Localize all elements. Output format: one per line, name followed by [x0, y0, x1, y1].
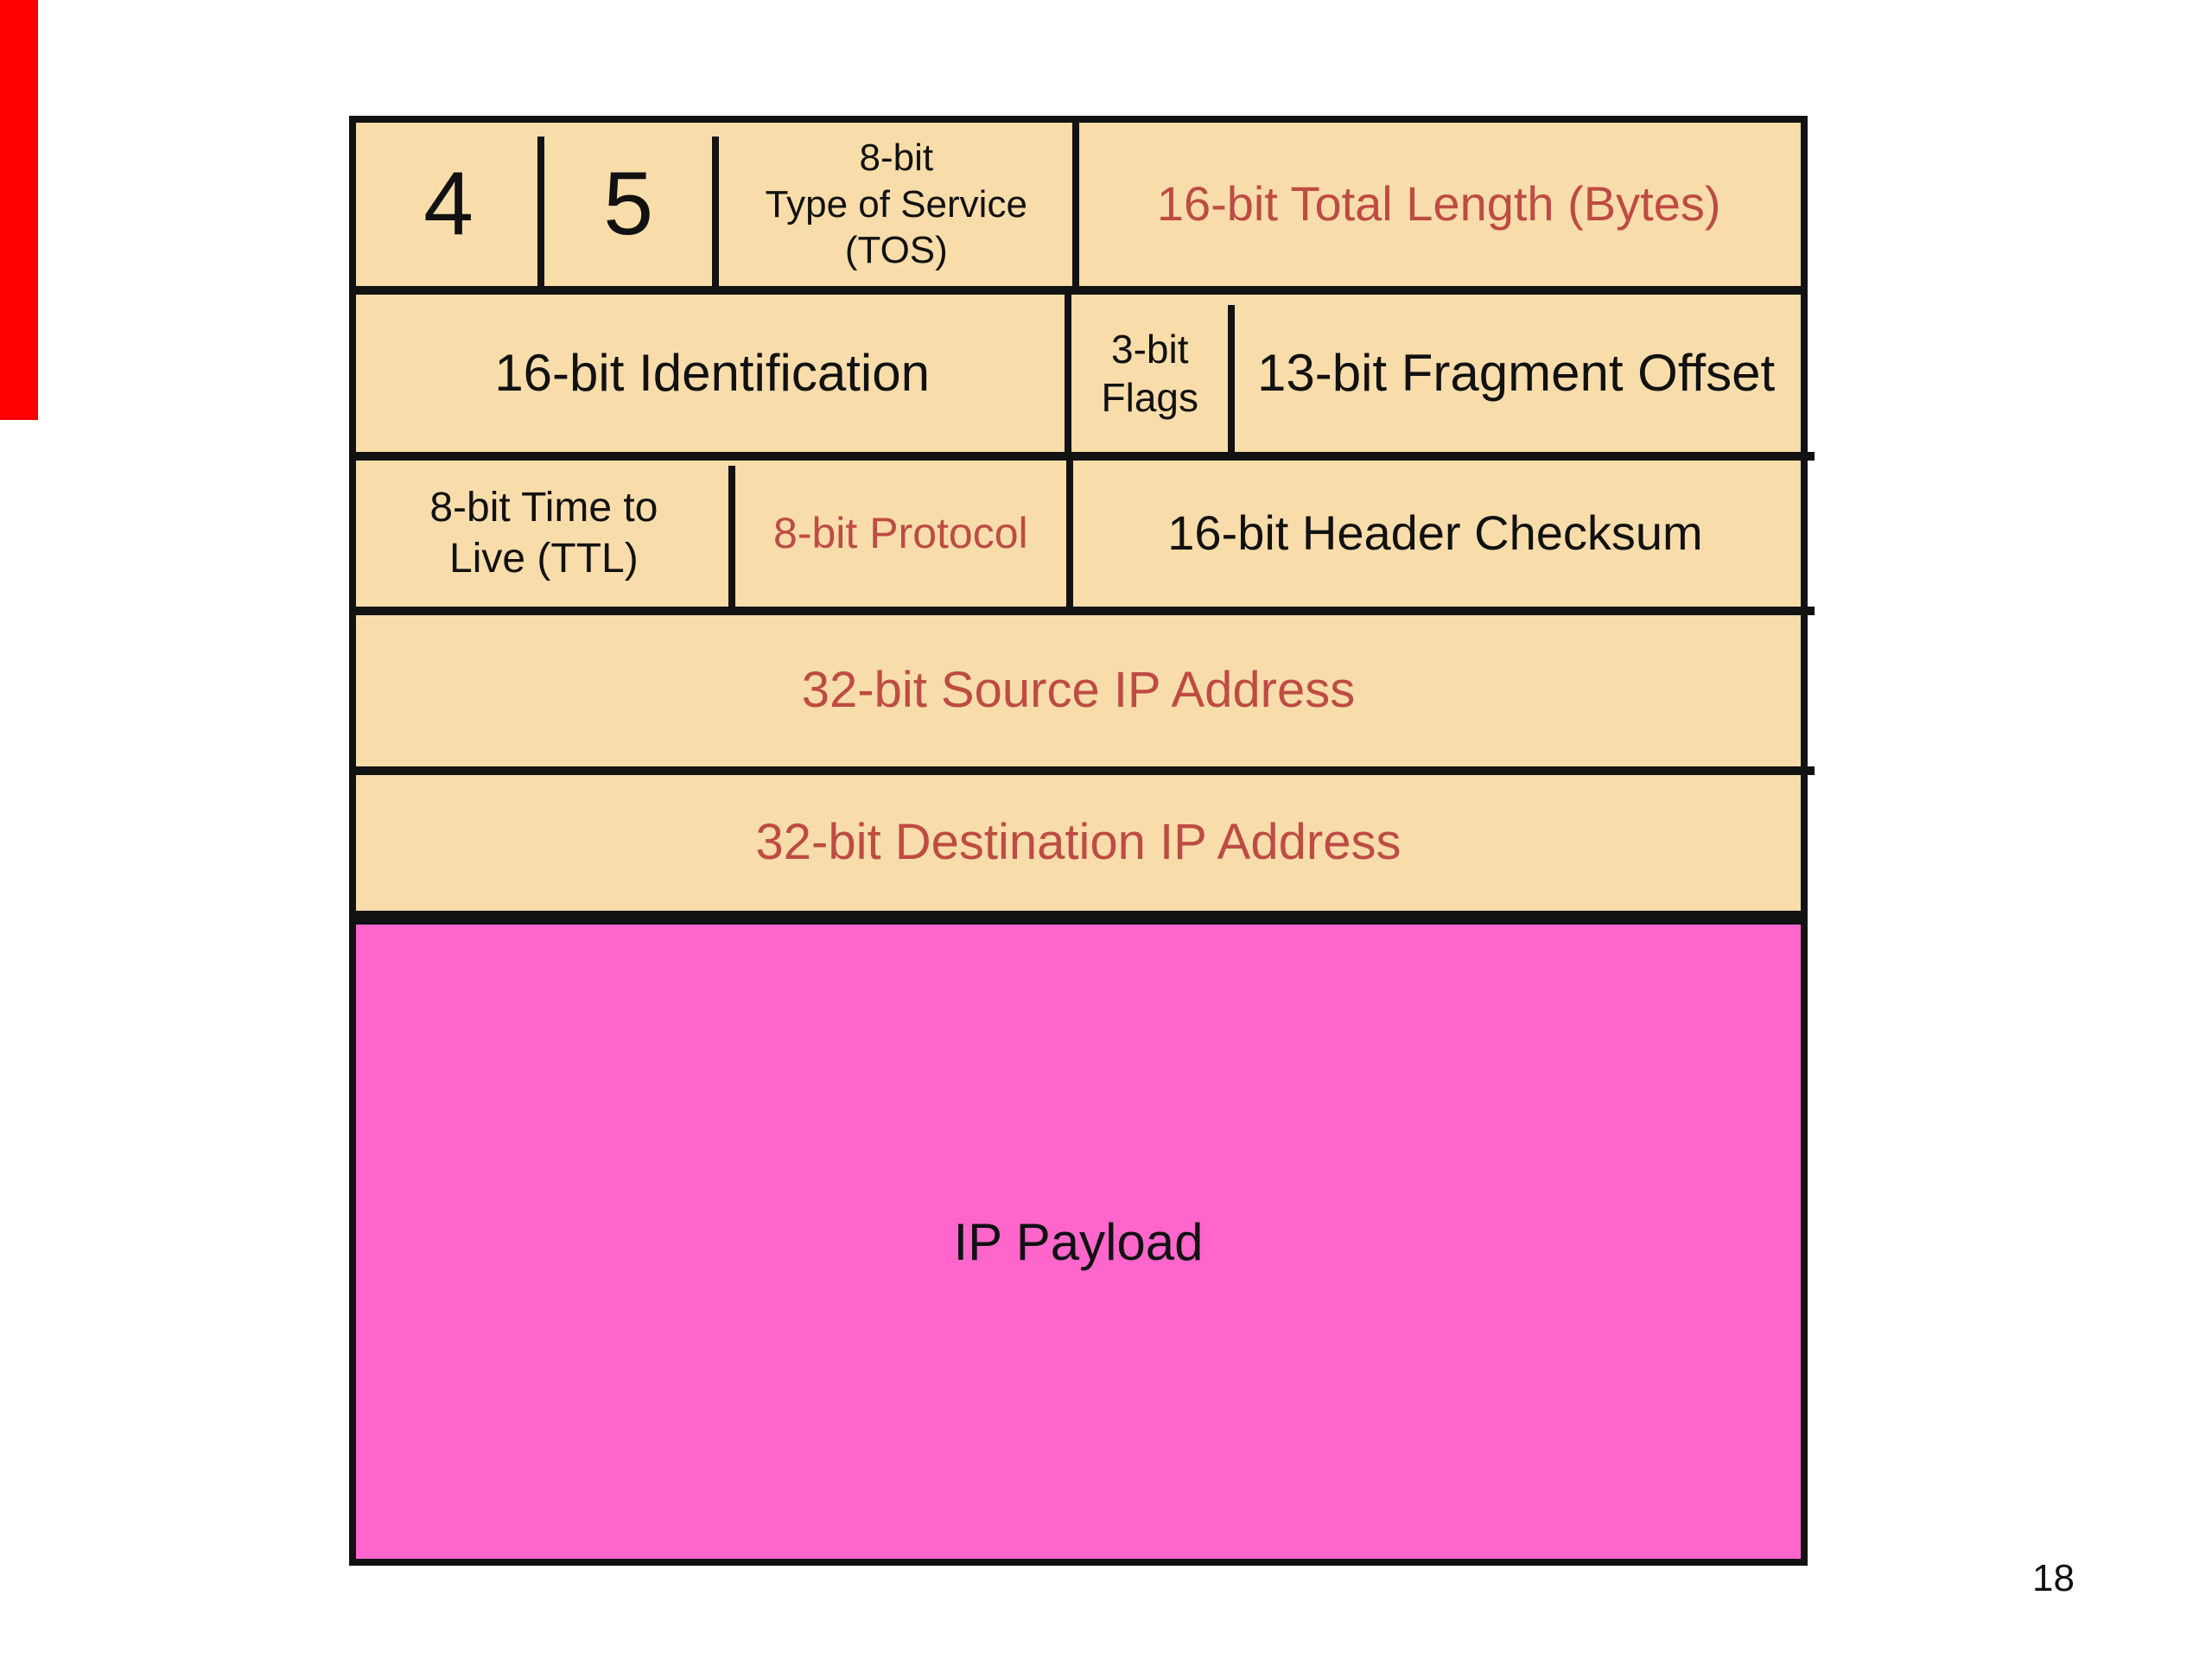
red-marker-strip: [0, 0, 38, 420]
cell-source-ip: 32-bit Source IP Address: [356, 615, 1801, 766]
cell-version: 4: [356, 123, 541, 286]
cell-header-checksum: 16-bit Header Checksum: [1070, 461, 1801, 607]
cell-flags: 3-bit Flags: [1068, 295, 1231, 452]
ihl-value: 5: [603, 149, 653, 259]
cell-identification: 16-bit Identification: [356, 295, 1068, 452]
flags-line-1: 3-bit: [1111, 325, 1188, 373]
flags-line-2: Flags: [1102, 373, 1198, 422]
header-row-3: 8-bit Time to Live (TTL) 8-bit Protocol …: [356, 461, 1801, 615]
payload-label: IP Payload: [953, 1212, 1203, 1272]
identification-label: 16-bit Identification: [494, 341, 930, 404]
page-number: 18: [2032, 1557, 2075, 1600]
cell-time-to-live: 8-bit Time to Live (TTL): [356, 461, 732, 607]
cell-total-length: 16-bit Total Length (Bytes): [1077, 123, 1801, 286]
header-row-2: 16-bit Identification 3-bit Flags 13-bit…: [356, 295, 1801, 461]
cell-protocol: 8-bit Protocol: [732, 461, 1070, 607]
source-ip-label: 32-bit Source IP Address: [802, 660, 1356, 721]
cell-fragment-offset: 13-bit Fragment Offset: [1231, 295, 1801, 452]
cell-ihl: 5: [541, 123, 715, 286]
ttl-line-1: 8-bit Time to: [429, 483, 658, 534]
header-row-1: 4 5 8-bit Type of Service (TOS) 16-bit T…: [356, 123, 1801, 295]
cell-destination-ip: 32-bit Destination IP Address: [356, 775, 1801, 911]
tos-line-3: (TOS): [845, 227, 948, 274]
column-divider: [728, 466, 735, 607]
column-divider: [1228, 305, 1235, 452]
column-divider: [712, 137, 719, 286]
destination-ip-label: 32-bit Destination IP Address: [756, 812, 1402, 874]
separator-overhang: [1801, 607, 1815, 615]
header-row-5: 32-bit Destination IP Address: [356, 775, 1801, 911]
column-divider: [1065, 295, 1071, 452]
cell-type-of-service: 8-bit Type of Service (TOS): [715, 123, 1077, 286]
protocol-label: 8-bit Protocol: [773, 507, 1028, 560]
tos-line-1: 8-bit: [860, 135, 934, 181]
column-divider: [1066, 461, 1073, 607]
version-value: 4: [423, 149, 474, 259]
separator-overhang: [1801, 766, 1815, 775]
payload-block: IP Payload: [349, 918, 1808, 1566]
fragment-offset-label: 13-bit Fragment Offset: [1257, 341, 1775, 404]
header-row-4: 32-bit Source IP Address: [356, 615, 1801, 775]
column-divider: [537, 137, 544, 286]
ttl-line-2: Live (TTL): [449, 534, 639, 585]
total-length-label: 16-bit Total Length (Bytes): [1157, 175, 1721, 233]
tos-line-2: Type of Service: [766, 181, 1027, 228]
ipv4-header-diagram: 4 5 8-bit Type of Service (TOS) 16-bit T…: [349, 116, 1808, 918]
slide: 4 5 8-bit Type of Service (TOS) 16-bit T…: [0, 0, 2212, 1659]
separator-overhang: [1801, 452, 1815, 461]
header-checksum-label: 16-bit Header Checksum: [1167, 504, 1702, 563]
column-divider: [1072, 123, 1079, 286]
